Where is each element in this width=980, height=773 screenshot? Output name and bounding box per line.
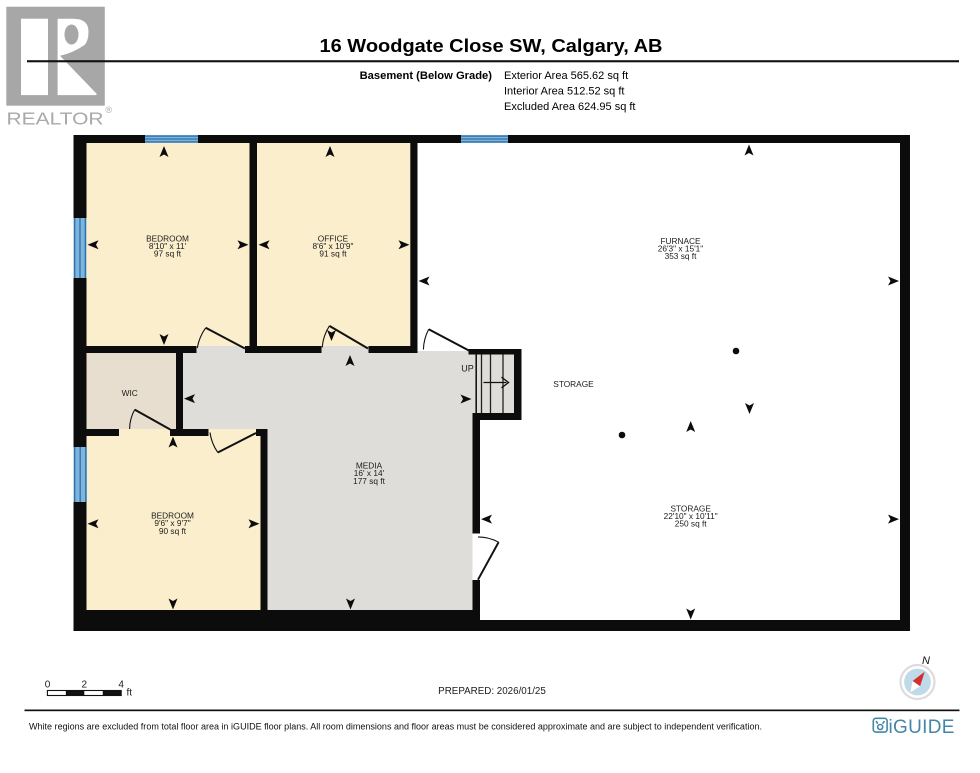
svg-text:90 sq ft: 90 sq ft xyxy=(159,526,187,536)
svg-text:STORAGE: STORAGE xyxy=(553,379,594,389)
svg-text:0: 0 xyxy=(45,680,51,691)
svg-text:250 sq ft: 250 sq ft xyxy=(675,519,708,529)
svg-text:Exterior Area 565.62 sq ft: Exterior Area 565.62 sq ft xyxy=(504,70,628,82)
svg-text:®: ® xyxy=(106,105,113,115)
svg-text:353 sq ft: 353 sq ft xyxy=(665,251,698,261)
svg-text:Basement (Below Grade): Basement (Below Grade) xyxy=(360,70,493,82)
svg-text:N: N xyxy=(922,655,930,667)
svg-text:16 Woodgate Close SW, Calgary,: 16 Woodgate Close SW, Calgary, AB xyxy=(320,35,663,56)
svg-text:UP: UP xyxy=(461,364,474,374)
svg-text:Interior Area 512.52 sq ft: Interior Area 512.52 sq ft xyxy=(504,86,624,98)
svg-text:REALTOR: REALTOR xyxy=(7,109,104,129)
svg-text:iGUIDE: iGUIDE xyxy=(889,717,955,738)
svg-text:PREPARED: 2026/01/25: PREPARED: 2026/01/25 xyxy=(438,686,546,697)
svg-text:ft: ft xyxy=(127,688,133,699)
svg-text:4: 4 xyxy=(118,680,124,691)
svg-text:177 sq ft: 177 sq ft xyxy=(353,476,386,486)
svg-text:White regions are excluded fro: White regions are excluded from total fl… xyxy=(29,722,762,733)
svg-text:91 sq ft: 91 sq ft xyxy=(319,249,347,259)
svg-text:WIC: WIC xyxy=(122,388,138,398)
svg-text:Excluded Area 624.95 sq ft: Excluded Area 624.95 sq ft xyxy=(504,101,635,113)
svg-text:2: 2 xyxy=(82,680,88,691)
svg-text:97 sq ft: 97 sq ft xyxy=(154,249,182,259)
